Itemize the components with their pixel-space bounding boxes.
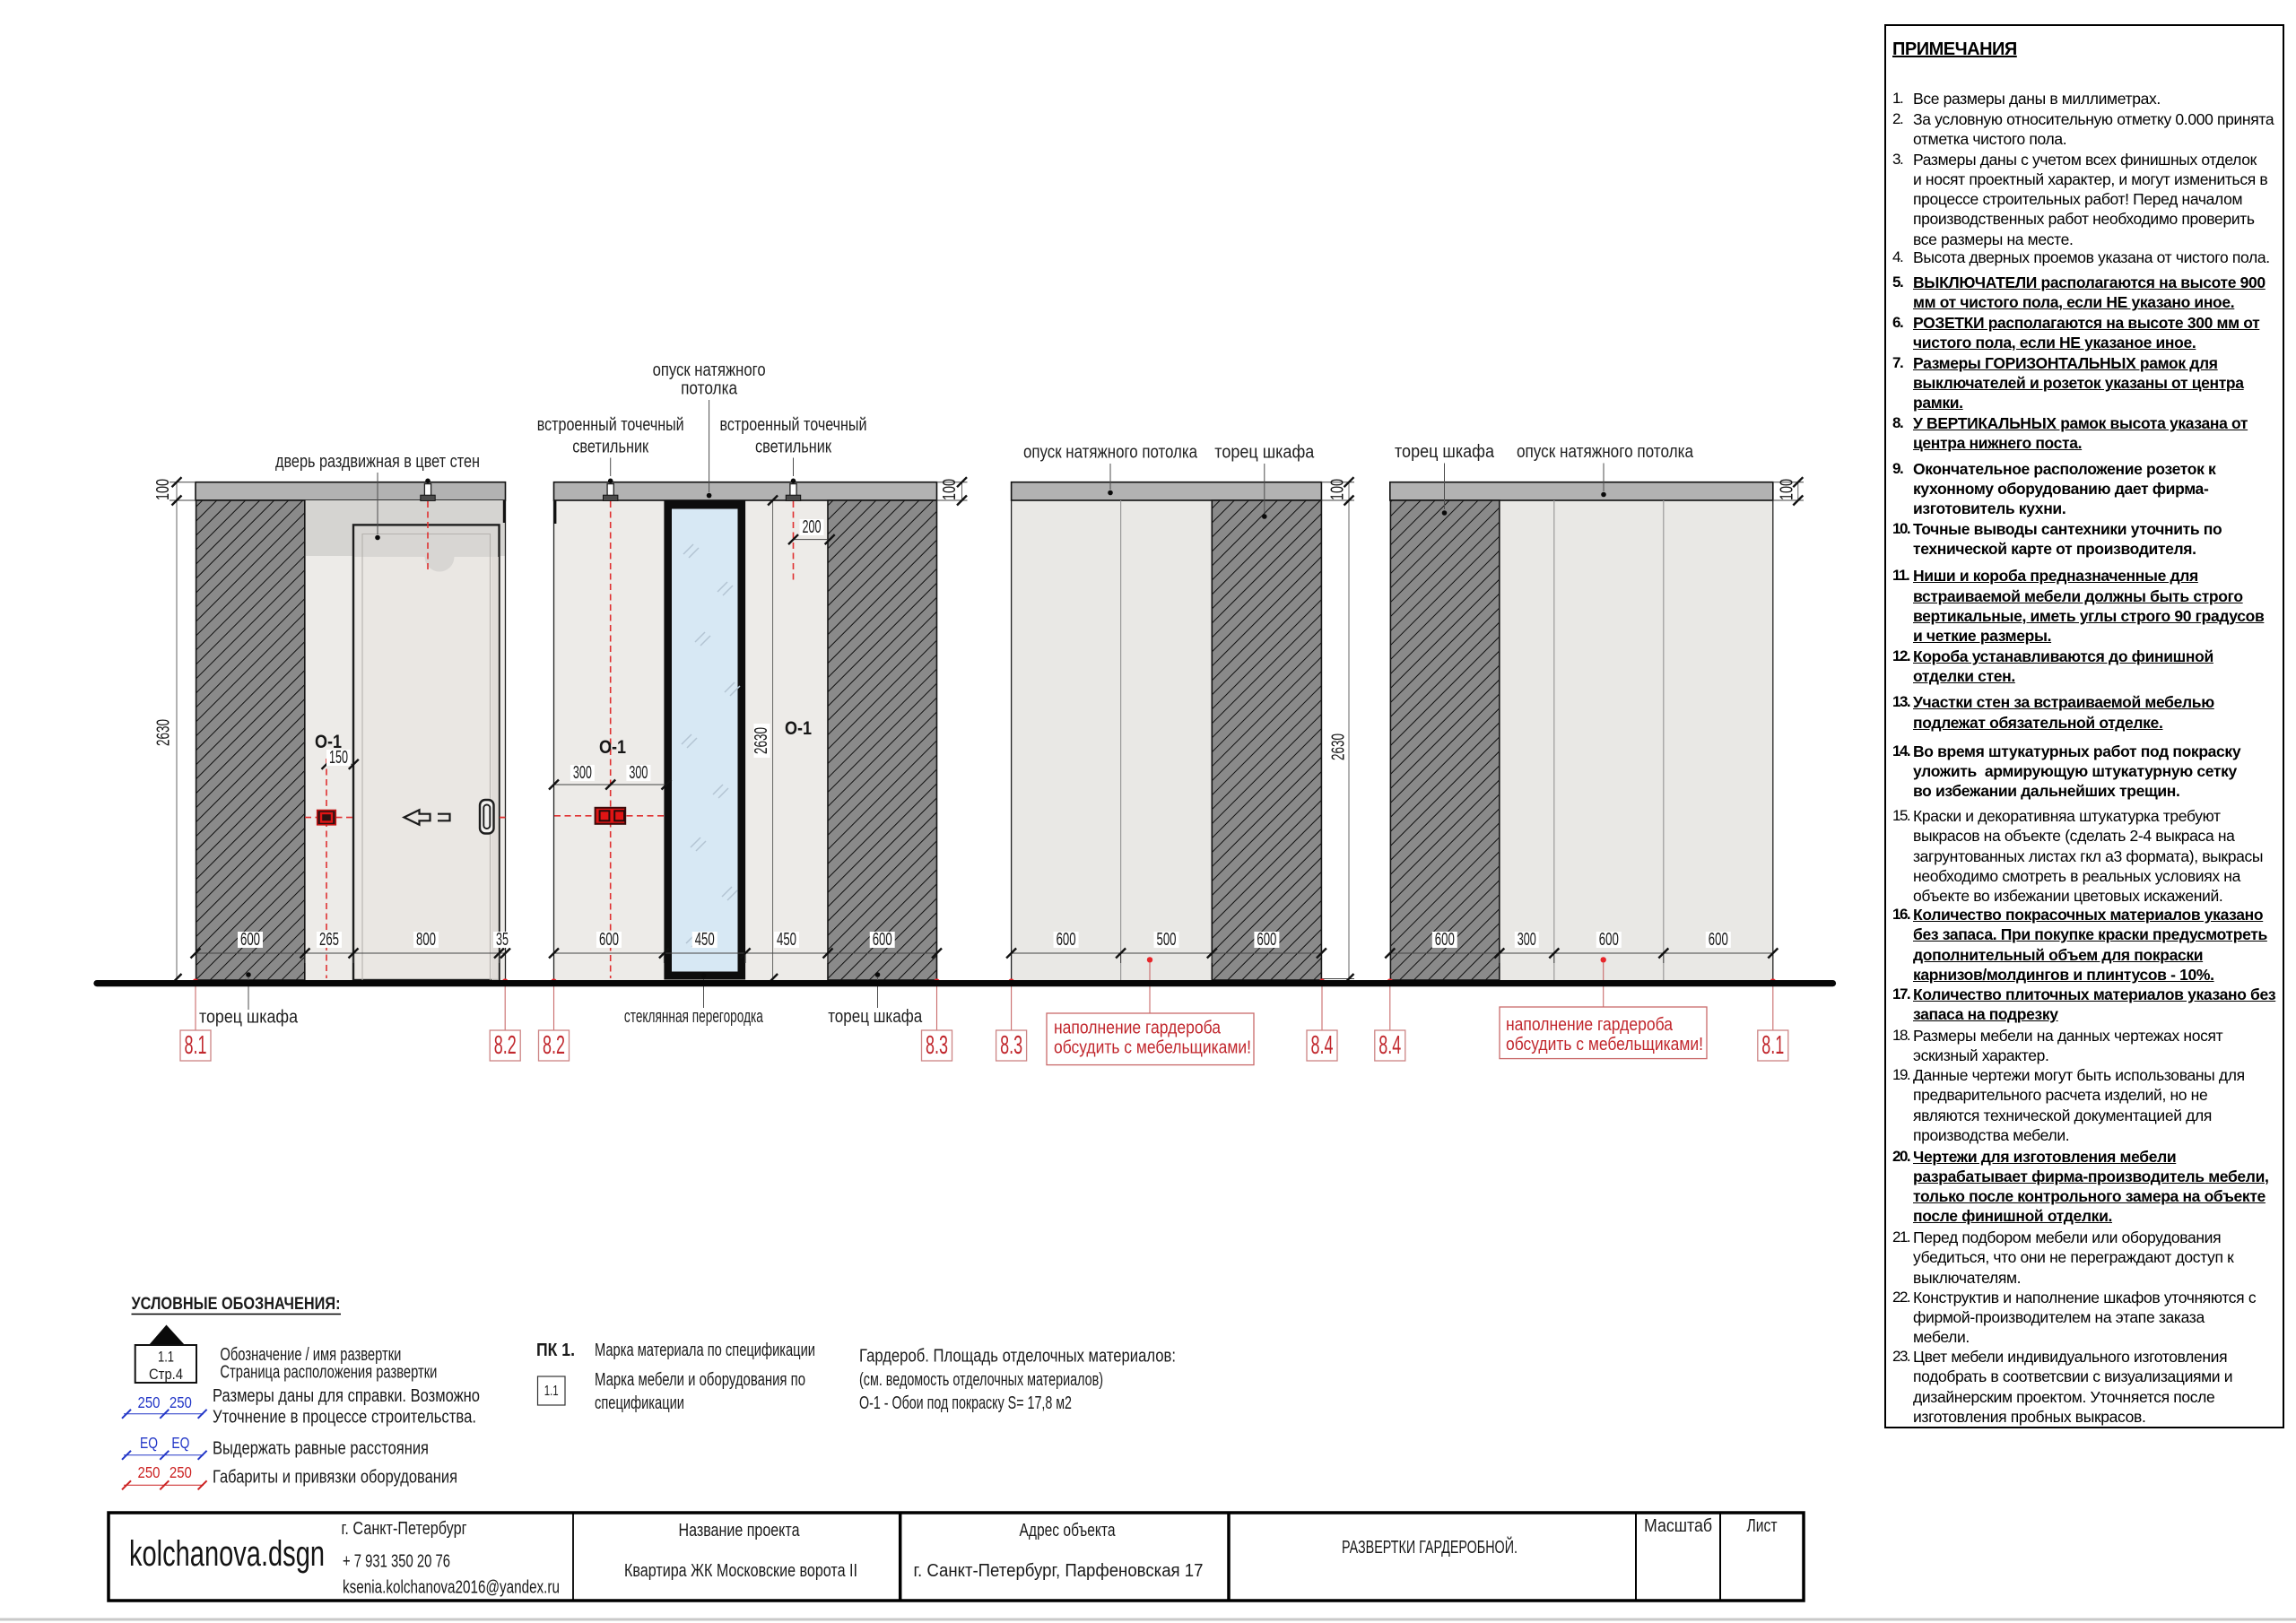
- svg-text:8.2: 8.2: [494, 1031, 517, 1060]
- svg-text:Выдержать равные расстояния: Выдержать равные расстояния: [213, 1438, 429, 1458]
- svg-text:Название проекта: Название проекта: [679, 1521, 801, 1541]
- svg-text:100: 100: [153, 479, 173, 500]
- svg-text:Лист: Лист: [1747, 1516, 1778, 1536]
- svg-text:600: 600: [599, 930, 619, 950]
- svg-text:г. Санкт-Петербург, Парфеновск: г. Санкт-Петербург, Парфеновская 17: [914, 1561, 1204, 1581]
- svg-text:8.3: 8.3: [926, 1031, 948, 1060]
- svg-text:500: 500: [1157, 930, 1177, 950]
- svg-text:265: 265: [319, 930, 339, 950]
- svg-text:торец шкафа: торец шкафа: [1395, 441, 1495, 462]
- svg-text:спецификации: спецификации: [595, 1393, 684, 1413]
- svg-text:800: 800: [416, 930, 436, 950]
- svg-text:600: 600: [873, 930, 892, 950]
- svg-text:О-1: О-1: [315, 732, 342, 752]
- svg-text:потолка: потолка: [681, 378, 737, 399]
- svg-text:600: 600: [1057, 930, 1076, 950]
- svg-text:обсудить с мебельщиками!: обсудить с мебельщиками!: [1054, 1038, 1251, 1058]
- svg-text:О-1: О-1: [785, 718, 812, 739]
- svg-text:(см. ведомость отделочных мате: (см. ведомость отделочных материалов): [859, 1370, 1103, 1390]
- svg-text:опуск натяжного потолка: опуск натяжного потолка: [1517, 441, 1693, 462]
- svg-text:1.1: 1.1: [158, 1349, 174, 1366]
- svg-text:35: 35: [496, 930, 509, 950]
- svg-text:8.4: 8.4: [1378, 1031, 1401, 1060]
- svg-text:250: 250: [138, 1463, 161, 1481]
- svg-text:торец шкафа: торец шкафа: [828, 1006, 922, 1027]
- svg-text:300: 300: [629, 763, 648, 783]
- svg-text:дверь раздвижная в цвет стен: дверь раздвижная в цвет стен: [275, 451, 480, 472]
- svg-text:8.1: 8.1: [185, 1031, 207, 1060]
- svg-text:встроенный точечный: встроенный точечный: [537, 414, 684, 435]
- svg-text:100: 100: [1778, 479, 1797, 500]
- svg-text:450: 450: [695, 930, 715, 950]
- svg-text:Страница расположения развертк: Страница расположения развертки: [220, 1362, 437, 1382]
- svg-text:600: 600: [1257, 930, 1276, 950]
- svg-text:300: 300: [1518, 930, 1536, 950]
- svg-text:8.4: 8.4: [1311, 1031, 1334, 1060]
- svg-text:Квартира ЖК Московские ворота: Квартира ЖК Московские ворота II: [624, 1561, 857, 1581]
- svg-text:100: 100: [940, 479, 960, 500]
- svg-text:опуск натяжного потолка: опуск натяжного потолка: [1023, 442, 1197, 463]
- svg-text:Стр.4: Стр.4: [149, 1366, 183, 1383]
- svg-text:600: 600: [1435, 930, 1455, 950]
- svg-text:2630: 2630: [1328, 733, 1348, 760]
- svg-text:Уточнение в процессе строитель: Уточнение в процессе строительства.: [213, 1408, 476, 1428]
- svg-text:наполнение гардероба: наполнение гардероба: [1506, 1015, 1674, 1035]
- svg-text:торец шкафа: торец шкафа: [199, 1007, 299, 1028]
- svg-text:2630: 2630: [153, 719, 173, 746]
- svg-text:8.3: 8.3: [1000, 1031, 1022, 1060]
- svg-text:EQ: EQ: [171, 1434, 189, 1452]
- svg-text:Размеры даны для справки. Возм: Размеры даны для справки. Возможно: [213, 1386, 480, 1406]
- svg-text:встроенный точечный: встроенный точечный: [720, 414, 867, 435]
- svg-text:О-1 - Обои под покраску S= 17: О-1 - Обои под покраску S= 17,8 м2: [859, 1393, 1072, 1413]
- svg-text:1.1: 1.1: [544, 1384, 559, 1399]
- svg-text:250: 250: [170, 1463, 192, 1481]
- svg-text:Гардероб. Площадь отделочных м: Гардероб. Площадь отделочных материалов:: [859, 1347, 1176, 1367]
- svg-text:ПК 1.: ПК 1.: [536, 1341, 575, 1360]
- svg-text:200: 200: [803, 517, 822, 537]
- svg-text:600: 600: [1599, 930, 1619, 950]
- svg-text:600: 600: [1709, 930, 1728, 950]
- svg-text:УСЛОВНЫЕ ОБОЗНАЧЕНИЯ:: УСЛОВНЫЕ ОБОЗНАЧЕНИЯ:: [132, 1295, 341, 1314]
- svg-text:8.2: 8.2: [543, 1031, 565, 1060]
- svg-text:450: 450: [777, 930, 796, 950]
- svg-text:О-1: О-1: [599, 737, 626, 758]
- svg-text:EQ: EQ: [140, 1434, 158, 1452]
- svg-text:2630: 2630: [752, 727, 771, 754]
- svg-text:обсудить с мебельщиками!: обсудить с мебельщиками!: [1506, 1035, 1703, 1055]
- svg-text:8.1: 8.1: [1761, 1031, 1784, 1060]
- svg-text:РАЗВЕРТКИ ГАРДЕРОБНОЙ.: РАЗВЕРТКИ ГАРДЕРОБНОЙ.: [1342, 1536, 1518, 1558]
- svg-text:300: 300: [573, 763, 592, 783]
- svg-text:наполнение гардероба: наполнение гардероба: [1054, 1019, 1222, 1038]
- svg-text:Габариты и привязки оборудован: Габариты и привязки оборудования: [213, 1468, 457, 1488]
- svg-text:Марка мебели и оборудования по: Марка мебели и оборудования по: [595, 1370, 805, 1390]
- svg-text:250: 250: [138, 1393, 161, 1411]
- svg-text:kolchanova.dsgn: kolchanova.dsgn: [129, 1534, 325, 1574]
- svg-text:Масштаб: Масштаб: [1644, 1516, 1712, 1536]
- svg-text:г. Санкт-Петербург: г. Санкт-Петербург: [342, 1519, 467, 1539]
- svg-text:торец шкафа: торец шкафа: [1214, 442, 1315, 463]
- svg-text:250: 250: [170, 1393, 192, 1411]
- svg-text:стеклянная перегородка: стеклянная перегородка: [624, 1006, 763, 1027]
- svg-text:светильник: светильник: [755, 437, 832, 457]
- svg-text:+ 7 931 350 20 76: + 7 931 350 20 76: [343, 1552, 450, 1572]
- svg-text:Адрес объекта: Адрес объекта: [1020, 1521, 1117, 1541]
- svg-text:Марка материала по спецификаци: Марка материала по спецификации: [595, 1341, 815, 1360]
- svg-text:100: 100: [1327, 479, 1347, 500]
- svg-text:ksenia.kolchanova2016@yandex.r: ksenia.kolchanova2016@yandex.ru: [343, 1578, 560, 1598]
- svg-text:светильник: светильник: [572, 437, 649, 457]
- svg-text:600: 600: [240, 930, 260, 950]
